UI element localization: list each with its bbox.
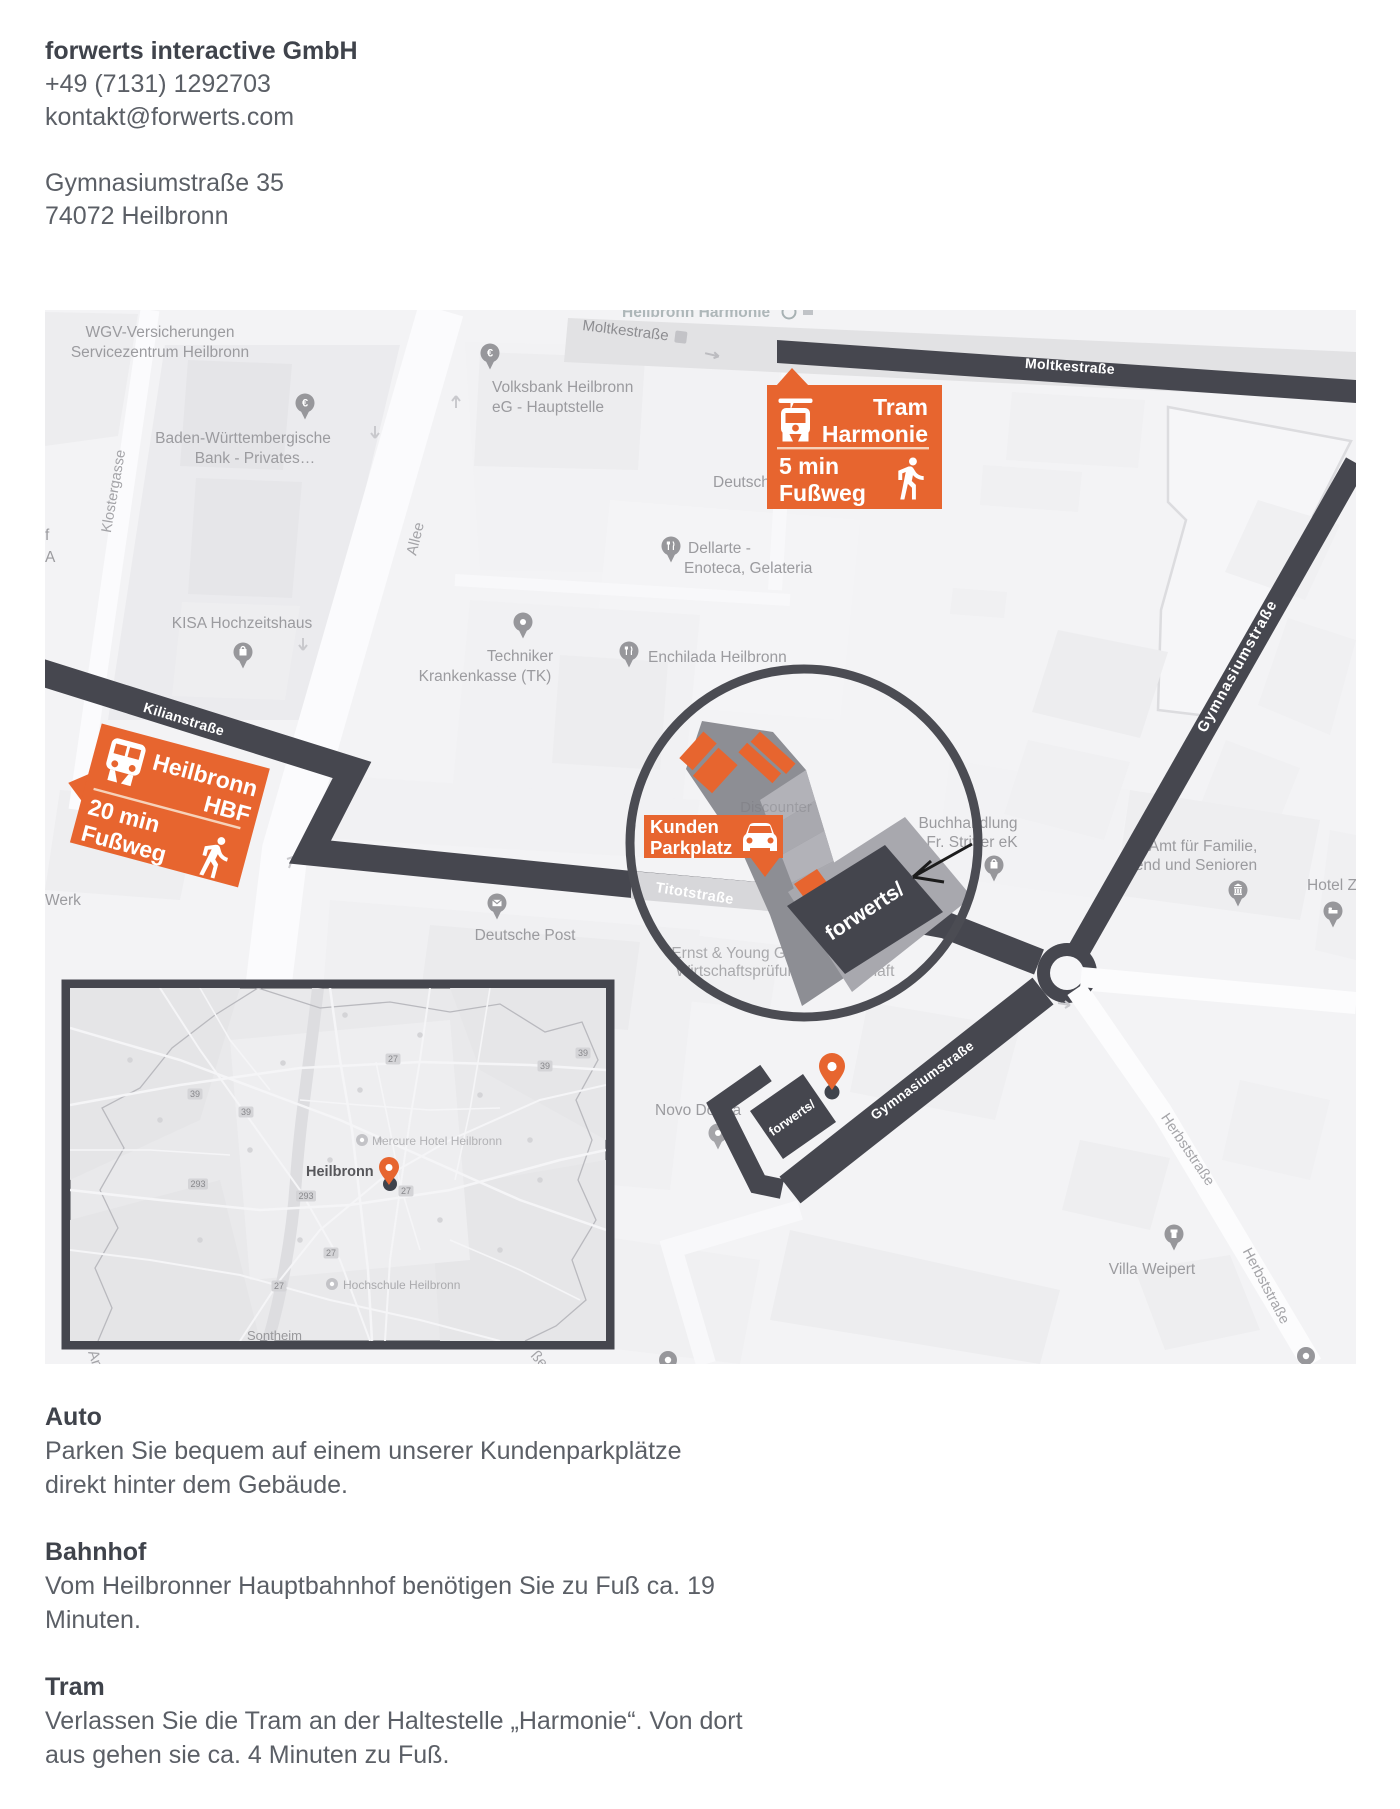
svg-text:Deutsch: Deutsch bbox=[713, 474, 770, 491]
svg-text:Sontheim: Sontheim bbox=[247, 1328, 302, 1343]
svg-text:27: 27 bbox=[401, 1186, 411, 1196]
svg-text:39: 39 bbox=[578, 1048, 588, 1058]
svg-text:Dellarte -: Dellarte - bbox=[688, 540, 751, 557]
svg-text:Krankenkasse (TK): Krankenkasse (TK) bbox=[419, 668, 552, 685]
svg-text:293: 293 bbox=[190, 1179, 205, 1189]
svg-text:Techniker: Techniker bbox=[487, 648, 553, 665]
svg-text:Amt für Familie,: Amt für Familie, bbox=[1149, 838, 1258, 855]
svg-text:eG - Hauptstelle: eG - Hauptstelle bbox=[492, 399, 604, 416]
svg-text:Tram: Tram bbox=[873, 394, 928, 420]
svg-text:Harmonie: Harmonie bbox=[822, 421, 928, 447]
svg-text:27: 27 bbox=[274, 1281, 284, 1291]
svg-text:Enchilada Heilbronn: Enchilada Heilbronn bbox=[648, 649, 787, 666]
svg-text:293: 293 bbox=[298, 1191, 313, 1201]
svg-text:5 min: 5 min bbox=[779, 453, 839, 479]
svg-text:Mercure Hotel Heilbronn: Mercure Hotel Heilbronn bbox=[372, 1134, 502, 1148]
svg-text:f: f bbox=[45, 527, 50, 544]
svg-text:WGV-Versicherungen: WGV-Versicherungen bbox=[85, 324, 234, 341]
svg-text:end und Senioren: end und Senioren bbox=[1135, 857, 1257, 874]
svg-text:Volksbank Heilbronn: Volksbank Heilbronn bbox=[492, 379, 633, 396]
svg-text:Hochschule Heilbronn: Hochschule Heilbronn bbox=[343, 1278, 460, 1292]
svg-text:Heilbronn: Heilbronn bbox=[306, 1164, 374, 1180]
svg-text:Discounter: Discounter bbox=[740, 799, 812, 816]
svg-text:Buchhandlung: Buchhandlung bbox=[918, 815, 1017, 832]
svg-text:A: A bbox=[45, 549, 56, 566]
svg-text:39: 39 bbox=[241, 1107, 251, 1117]
svg-text:€: € bbox=[302, 398, 308, 410]
svg-text:Enoteca, Gelateria: Enoteca, Gelateria bbox=[684, 560, 813, 577]
svg-text:Deutsche Post: Deutsche Post bbox=[475, 927, 576, 944]
svg-text:Kunden: Kunden bbox=[650, 816, 719, 837]
svg-text:27: 27 bbox=[388, 1054, 398, 1064]
svg-text:27: 27 bbox=[326, 1248, 336, 1258]
svg-text:Werk: Werk bbox=[45, 892, 81, 909]
svg-text:€: € bbox=[487, 348, 493, 360]
svg-text:Heilbronn Harmonie: Heilbronn Harmonie bbox=[622, 310, 771, 321]
svg-text:Villa Weipert: Villa Weipert bbox=[1109, 1261, 1196, 1278]
svg-text:Bank - Privates…: Bank - Privates… bbox=[195, 450, 316, 467]
svg-text:Parkplatz: Parkplatz bbox=[650, 837, 732, 858]
svg-text:KISA Hochzeitshaus: KISA Hochzeitshaus bbox=[172, 615, 313, 632]
svg-text:Fußweg: Fußweg bbox=[779, 480, 866, 506]
svg-text:Baden-Württembergische: Baden-Württembergische bbox=[155, 430, 331, 447]
svg-text:39: 39 bbox=[190, 1089, 200, 1099]
svg-text:Hotel Z: Hotel Z bbox=[1307, 877, 1356, 894]
svg-text:Servicezentrum Heilbronn: Servicezentrum Heilbronn bbox=[71, 344, 249, 361]
svg-text:39: 39 bbox=[540, 1061, 550, 1071]
svg-text:Fr. Stritter eK: Fr. Stritter eK bbox=[926, 834, 1018, 851]
